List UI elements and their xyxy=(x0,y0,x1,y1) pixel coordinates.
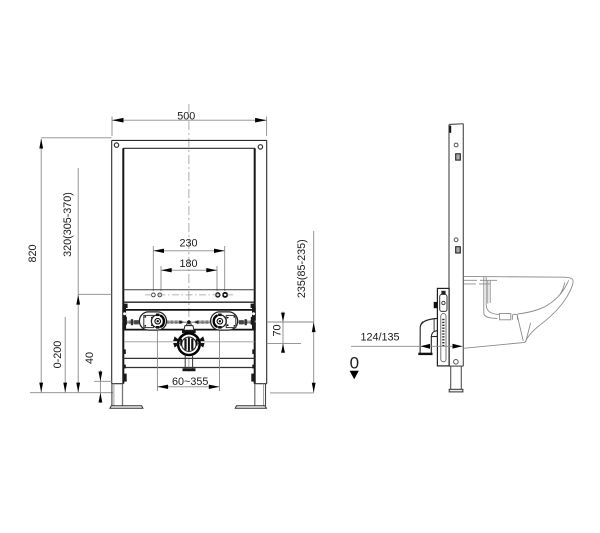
svg-text:500: 500 xyxy=(177,110,195,122)
svg-text:60~355: 60~355 xyxy=(172,376,208,388)
svg-text:235(85-235): 235(85-235) xyxy=(296,239,308,298)
svg-text:230: 230 xyxy=(179,238,197,250)
svg-text:180: 180 xyxy=(179,258,197,270)
svg-text:0: 0 xyxy=(350,354,359,373)
svg-text:40: 40 xyxy=(84,352,96,364)
svg-text:124/135: 124/135 xyxy=(360,332,399,344)
svg-text:320(305-370): 320(305-370) xyxy=(62,192,74,257)
svg-text:70: 70 xyxy=(271,324,283,336)
svg-text:820: 820 xyxy=(27,244,39,262)
svg-text:0-200: 0-200 xyxy=(52,341,64,369)
